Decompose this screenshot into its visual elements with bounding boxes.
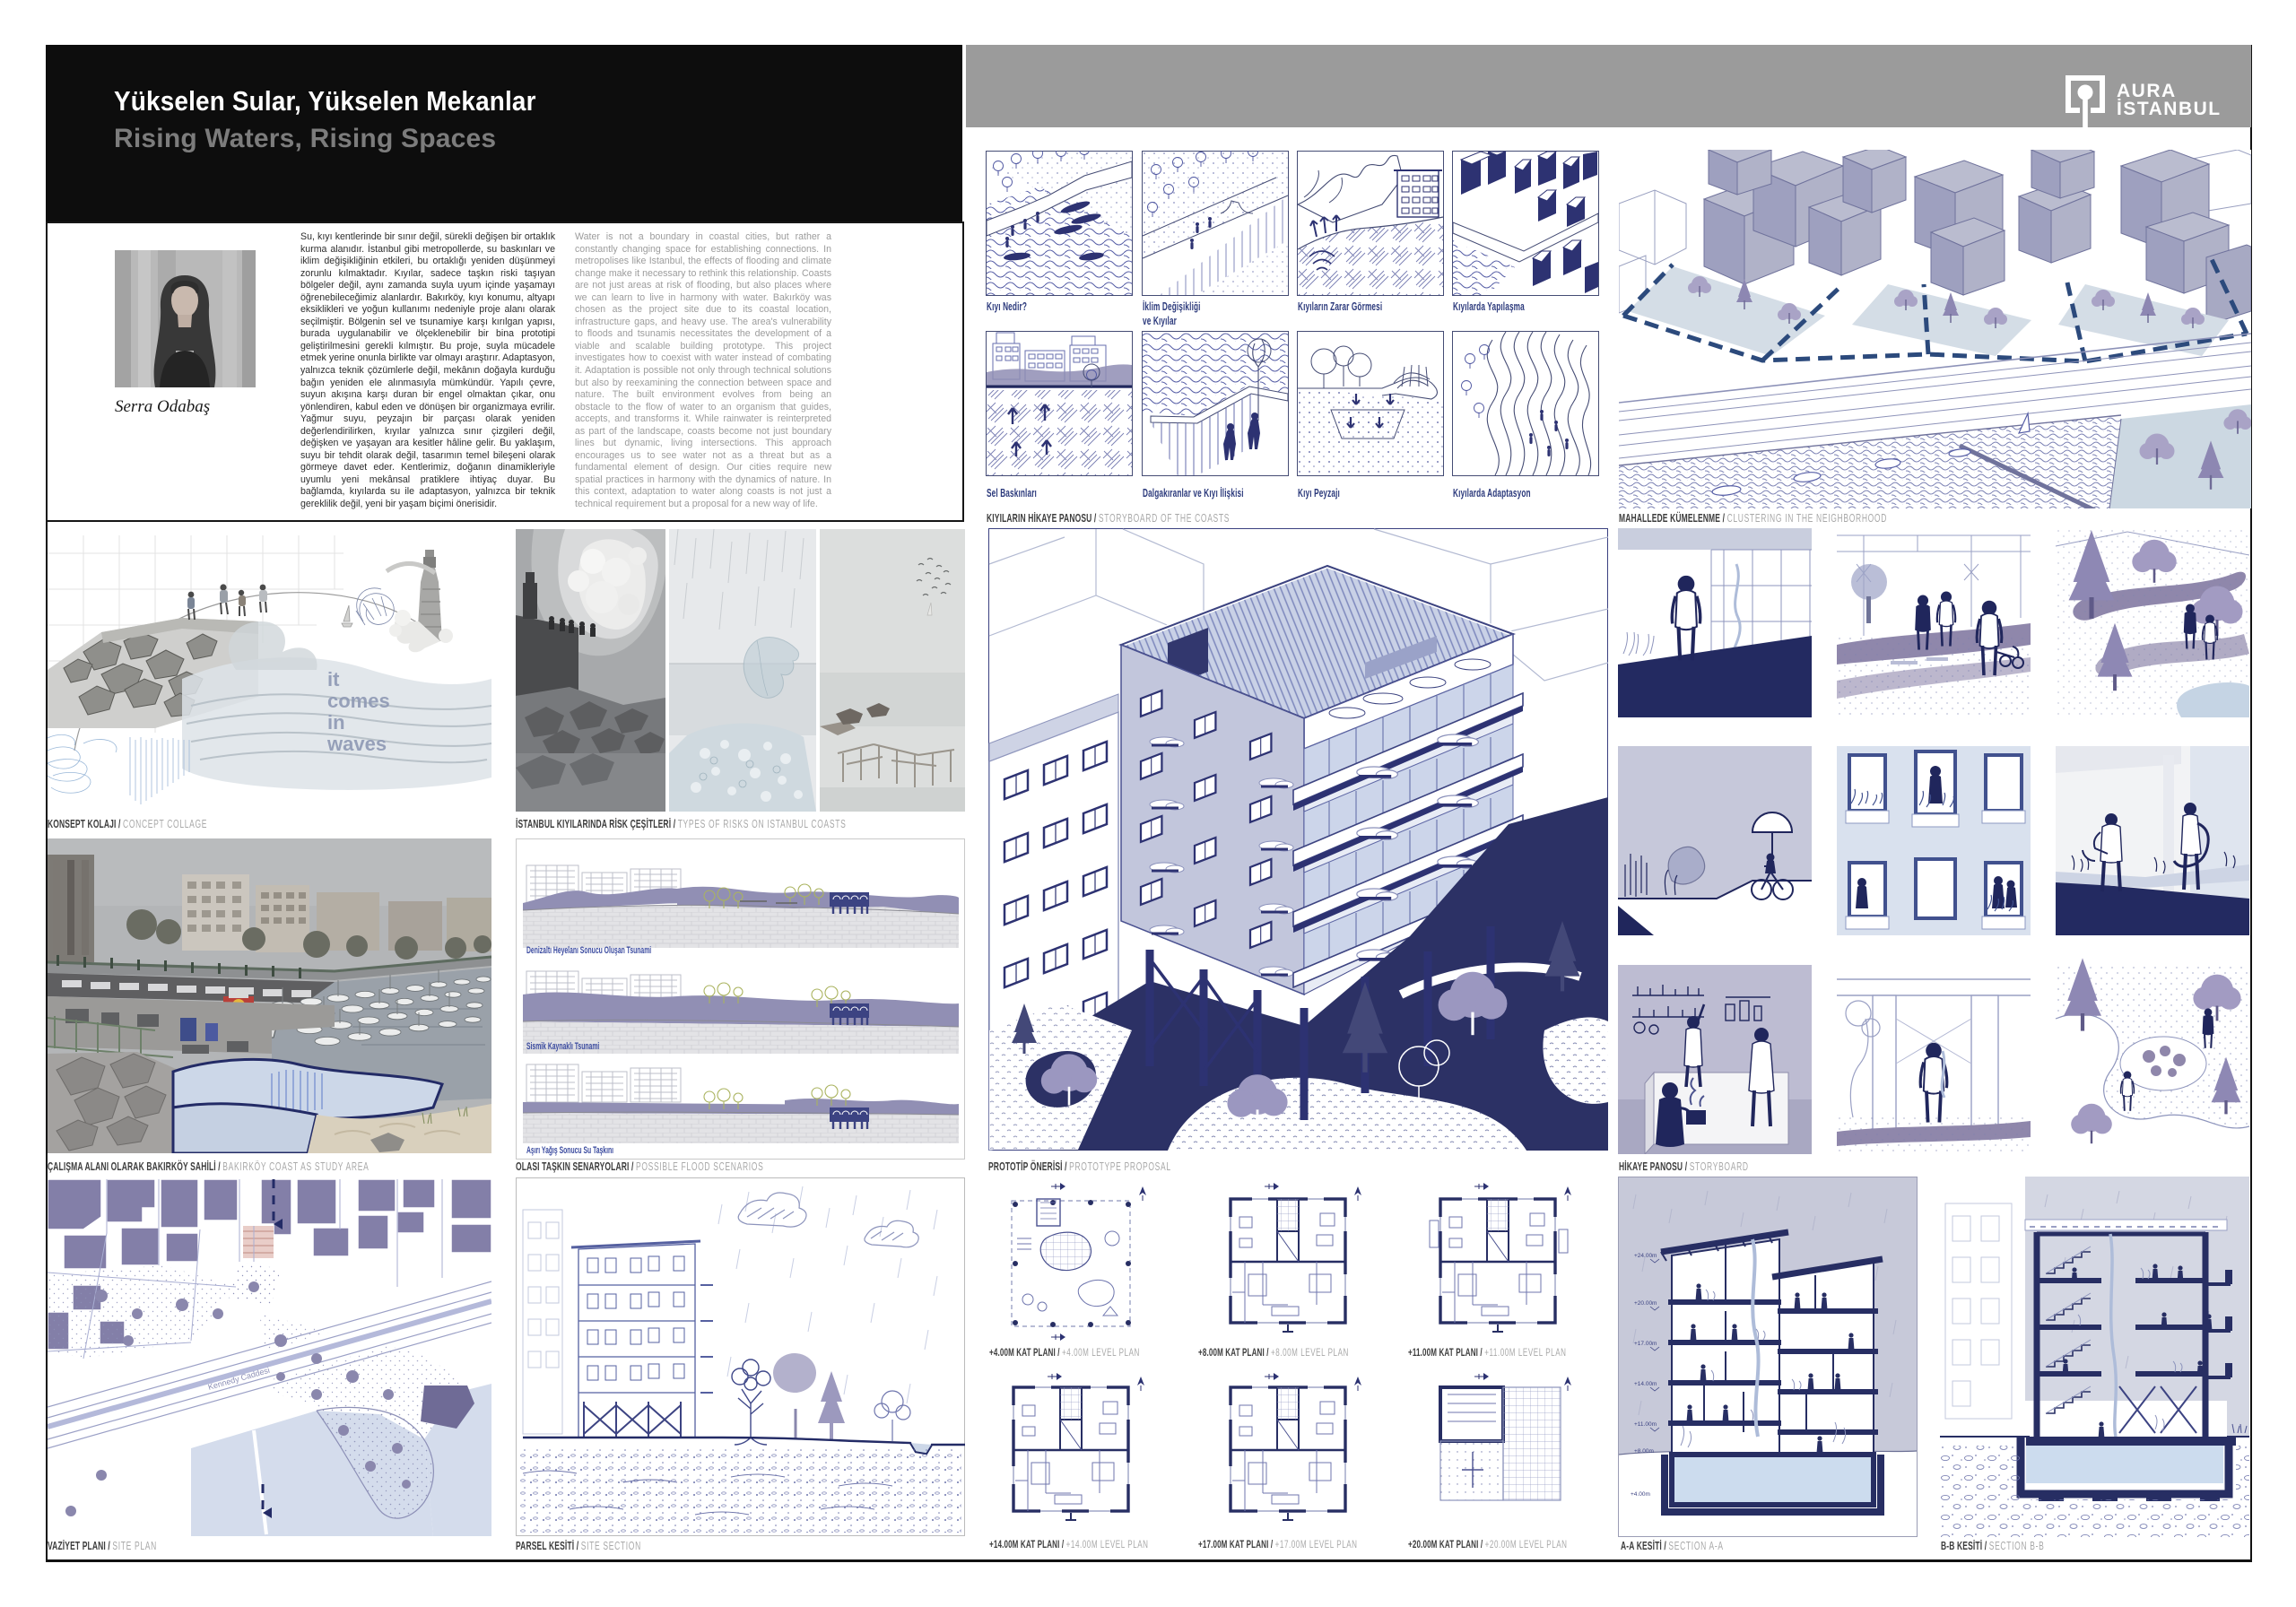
svg-text:it: it <box>327 668 340 691</box>
svg-text:+8.00m: +8.00m <box>1634 1448 1654 1455</box>
svg-text:Sismik Kaynaklı Tsunami: Sismik Kaynaklı Tsunami <box>526 1040 599 1051</box>
svg-text:+4.00m: +4.00m <box>1631 1491 1650 1498</box>
svg-text:+14.00m: +14.00m <box>1634 1381 1657 1387</box>
svg-text:in: in <box>327 711 345 734</box>
svg-text:+20.00m: +20.00m <box>1634 1300 1657 1307</box>
svg-text:comes: comes <box>327 690 390 712</box>
svg-text:waves: waves <box>326 733 387 755</box>
svg-text:+24.00m: +24.00m <box>1634 1253 1657 1259</box>
svg-text:Aşırı Yağış Sonucu Su Taşkını: Aşırı Yağış Sonucu Su Taşkını <box>526 1144 613 1155</box>
svg-text:Denizaltı Heyelanı Sonucu Oluş: Denizaltı Heyelanı Sonucu Oluşan Tsunami <box>526 944 651 955</box>
svg-text:+11.00m: +11.00m <box>1634 1421 1657 1428</box>
svg-text:+17.00m: +17.00m <box>1634 1341 1657 1347</box>
svg-text:İSTANBUL: İSTANBUL <box>2117 99 2222 119</box>
